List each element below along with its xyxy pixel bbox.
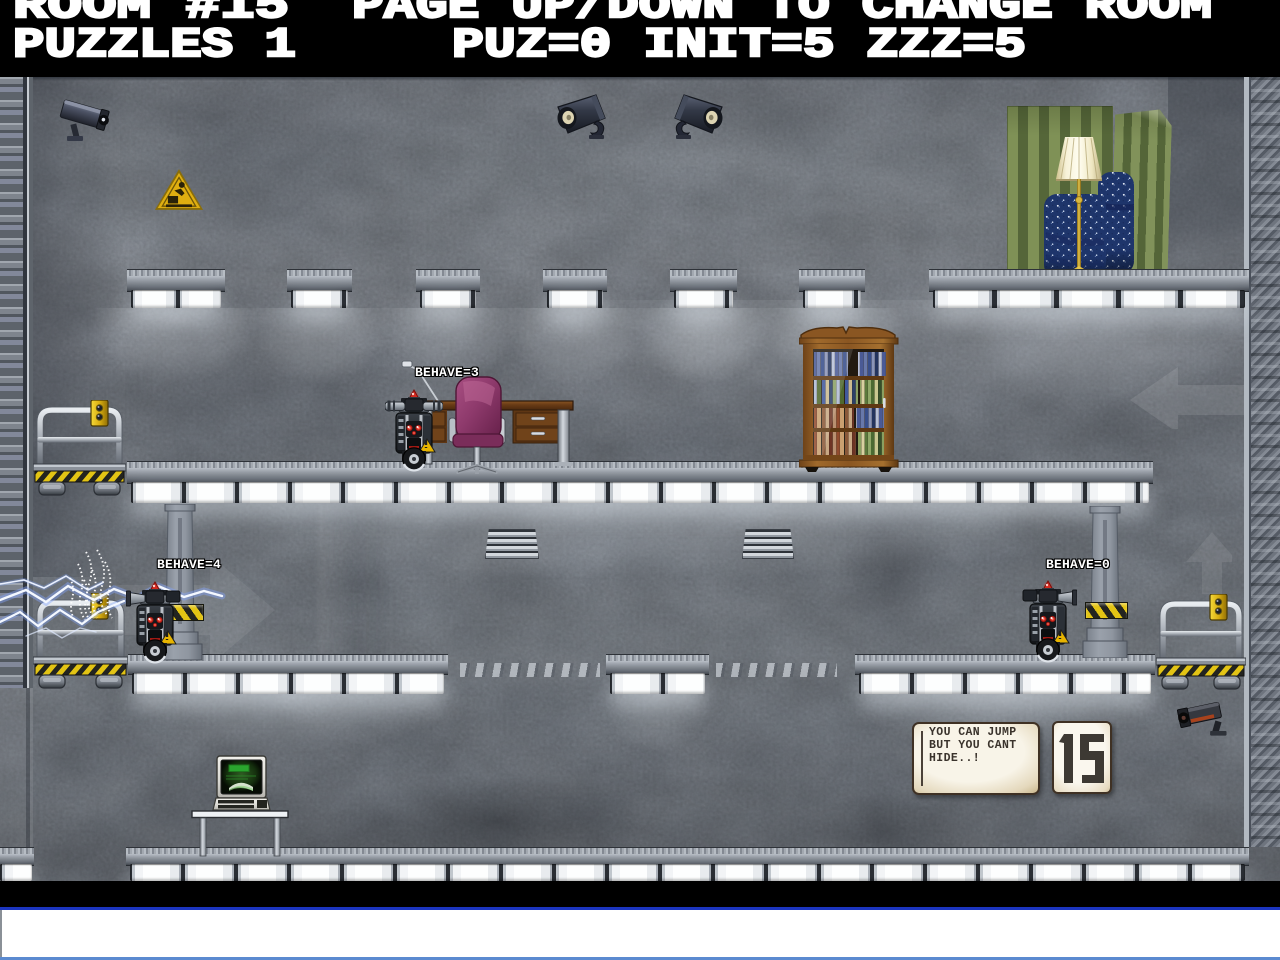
svg-text:PUZZLES 1: PUZZLES 1 bbox=[13, 21, 296, 69]
svg-text:PUZ=0 INIT=5 ZZZ=5: PUZ=0 INIT=5 ZZZ=5 bbox=[452, 21, 1026, 69]
